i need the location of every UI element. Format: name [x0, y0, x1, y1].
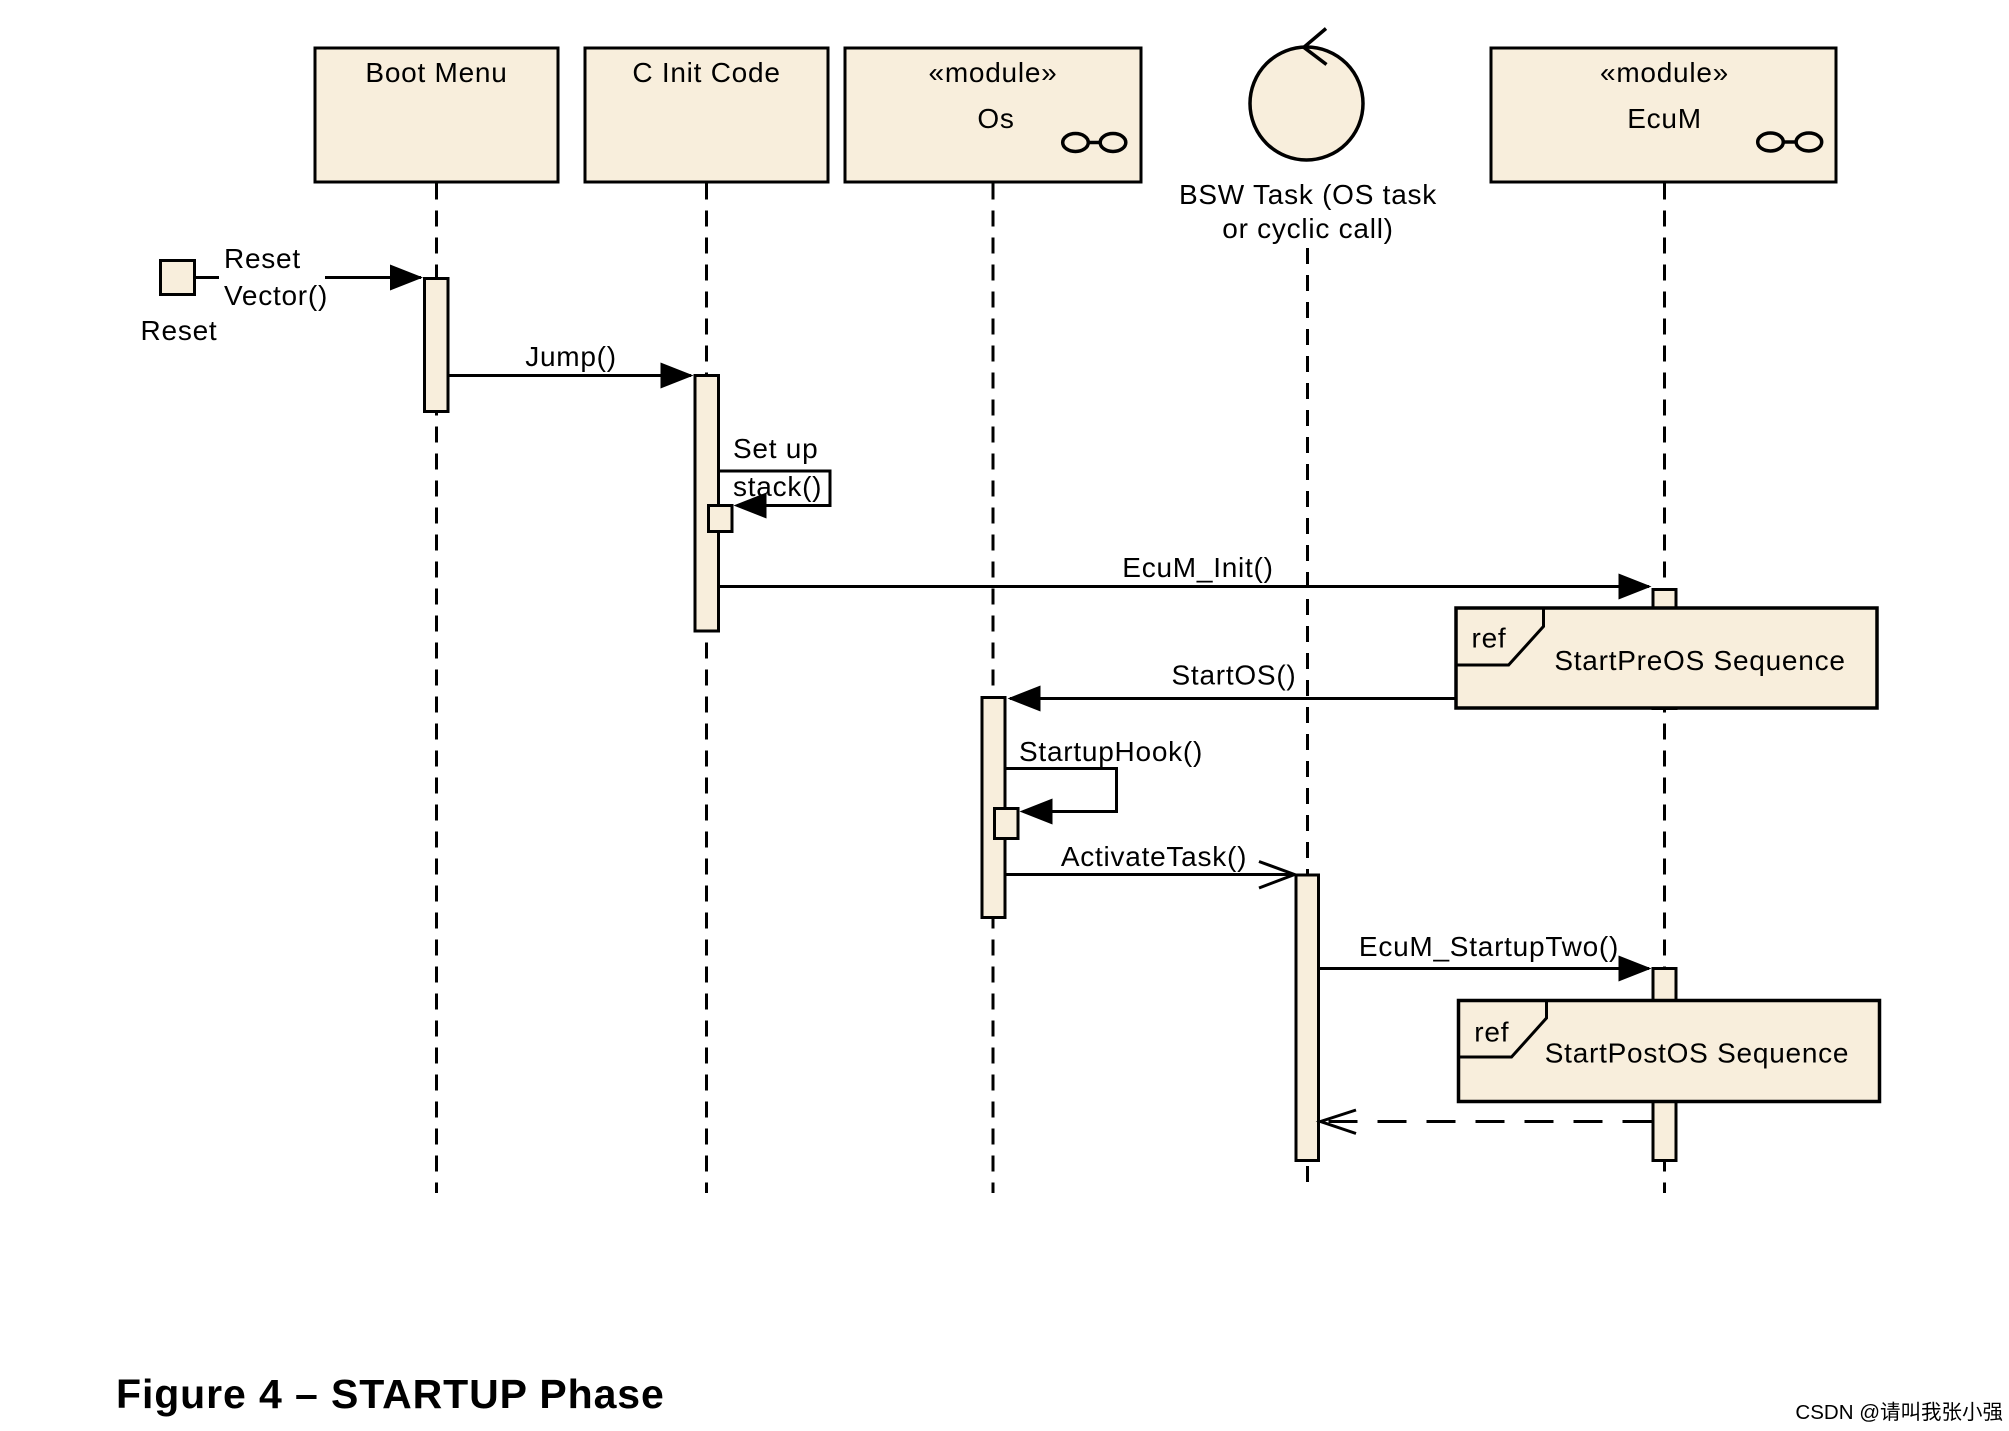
svg-text:BSW Task (OS task: BSW Task (OS task: [1179, 179, 1437, 210]
svg-text:stack(): stack(): [733, 471, 822, 502]
svg-text:ActivateTask(): ActivateTask(): [1061, 841, 1247, 872]
svg-text:StartupHook(): StartupHook(): [1019, 736, 1203, 767]
svg-text:Set up: Set up: [733, 433, 818, 464]
svg-text:«module»: «module»: [1600, 57, 1729, 88]
svg-text:ref: ref: [1472, 623, 1507, 654]
svg-text:ref: ref: [1474, 1017, 1509, 1048]
svg-text:Reset: Reset: [141, 315, 218, 346]
svg-text:CSDN @请叫我张小强: CSDN @请叫我张小强: [1795, 1401, 2003, 1424]
svg-text:«module»: «module»: [929, 57, 1058, 88]
svg-text:StartOS(): StartOS(): [1172, 660, 1297, 691]
svg-text:Figure 4 – STARTUP Phase: Figure 4 – STARTUP Phase: [116, 1371, 665, 1417]
svg-text:EcuM: EcuM: [1627, 103, 1702, 134]
svg-text:EcuM_Init(): EcuM_Init(): [1122, 552, 1273, 583]
svg-text:C Init Code: C Init Code: [632, 57, 780, 88]
svg-text:StartPostOS Sequence: StartPostOS Sequence: [1545, 1038, 1850, 1069]
svg-text:StartPreOS Sequence: StartPreOS Sequence: [1554, 645, 1845, 676]
svg-text:Boot Menu: Boot Menu: [365, 57, 507, 88]
svg-text:EcuM_StartupTwo(): EcuM_StartupTwo(): [1359, 931, 1619, 962]
svg-text:Jump(): Jump(): [525, 341, 617, 372]
svg-text:Os: Os: [977, 103, 1014, 134]
svg-text:or cyclic call): or cyclic call): [1222, 213, 1393, 244]
svg-text:Vector(): Vector(): [224, 280, 328, 311]
svg-text:Reset: Reset: [224, 243, 301, 274]
